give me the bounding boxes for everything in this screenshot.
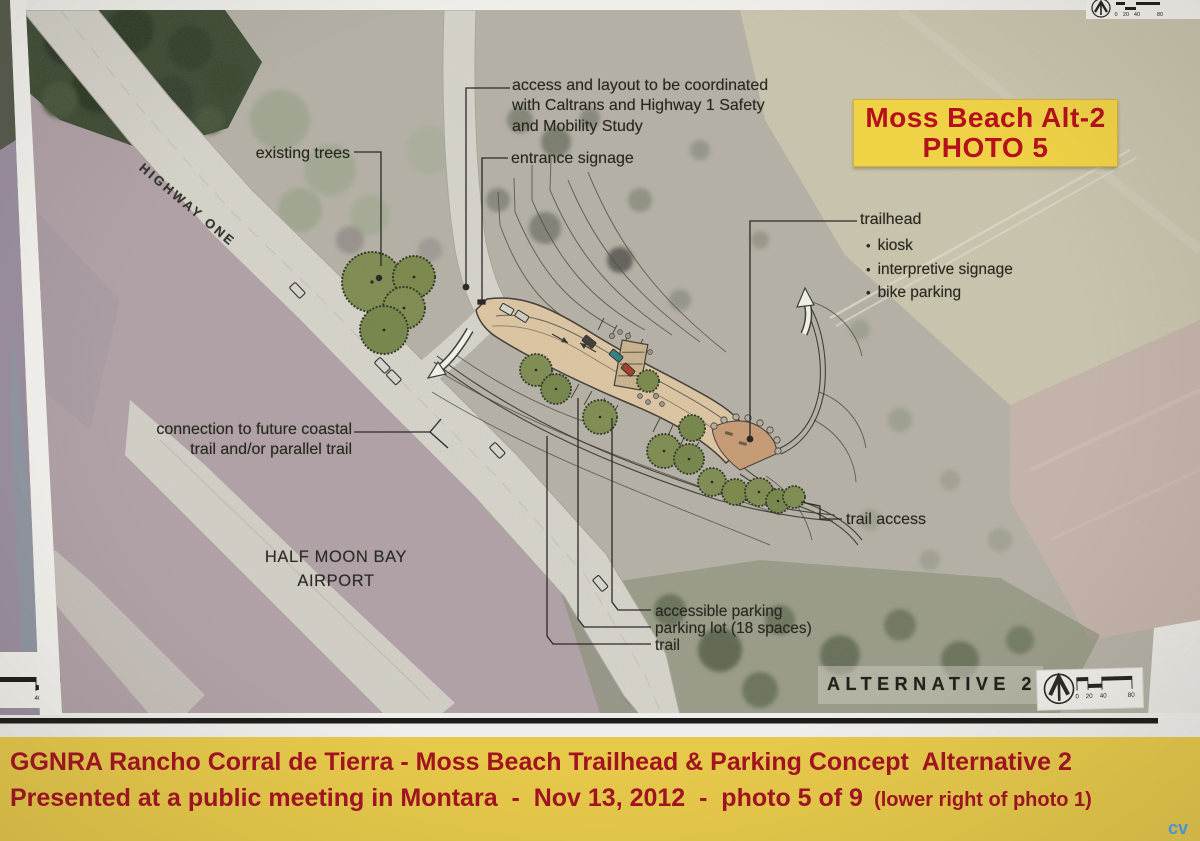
annotation-trailhead: trailhead kiosk interpretive signage bik… [860, 210, 1013, 305]
caption-note: (lower right of photo 1) [863, 789, 1092, 811]
caption-line2: Presented at a public meeting in Montara… [10, 784, 1092, 813]
airport-label: HALF MOON BAY AIRPORT [243, 545, 429, 593]
caption-bar: GGNRA Rancho Corral de Tierra - Moss Bea… [0, 737, 1200, 841]
photo-of-presentation-board: 40 80 [0, 0, 1200, 841]
photo-id-line2: PHOTO 5 [854, 133, 1117, 163]
annotation-entrance-signage: entrance signage [511, 149, 634, 169]
top-board-scale-box: 0 20 40 80 [1086, 0, 1200, 19]
alternative-2-label: ALTERNATIVE 2 [827, 674, 1037, 695]
photo-id-line1: Moss Beach Alt-2 [854, 103, 1117, 133]
trailhead-item: kiosk [866, 234, 1013, 258]
annotation-trail-access: trail access [846, 510, 926, 530]
annotation-connection: connection to future coastal trail and/o… [140, 420, 352, 461]
svg-text:20: 20 [1123, 12, 1129, 18]
trailhead-item: interpretive signage [866, 258, 1013, 282]
board-edge-line [0, 718, 1158, 724]
trailhead-items: kiosk interpretive signage bike parking [866, 234, 1013, 305]
photographer-credit: cv [1168, 818, 1188, 839]
annotation-existing-trees: existing trees [200, 144, 350, 164]
svg-text:0: 0 [1114, 12, 1117, 18]
annotation-trail: trail [655, 636, 680, 656]
photo-id-box: Moss Beach Alt-2 PHOTO 5 [853, 99, 1118, 167]
svg-text:80: 80 [1157, 12, 1163, 18]
trailhead-item: bike parking [866, 281, 1013, 305]
svg-text:40: 40 [1134, 12, 1140, 18]
annotation-access-note: access and layout to be coordinated with… [512, 76, 774, 137]
caption-line1: GGNRA Rancho Corral de Tierra - Moss Bea… [10, 748, 1072, 777]
